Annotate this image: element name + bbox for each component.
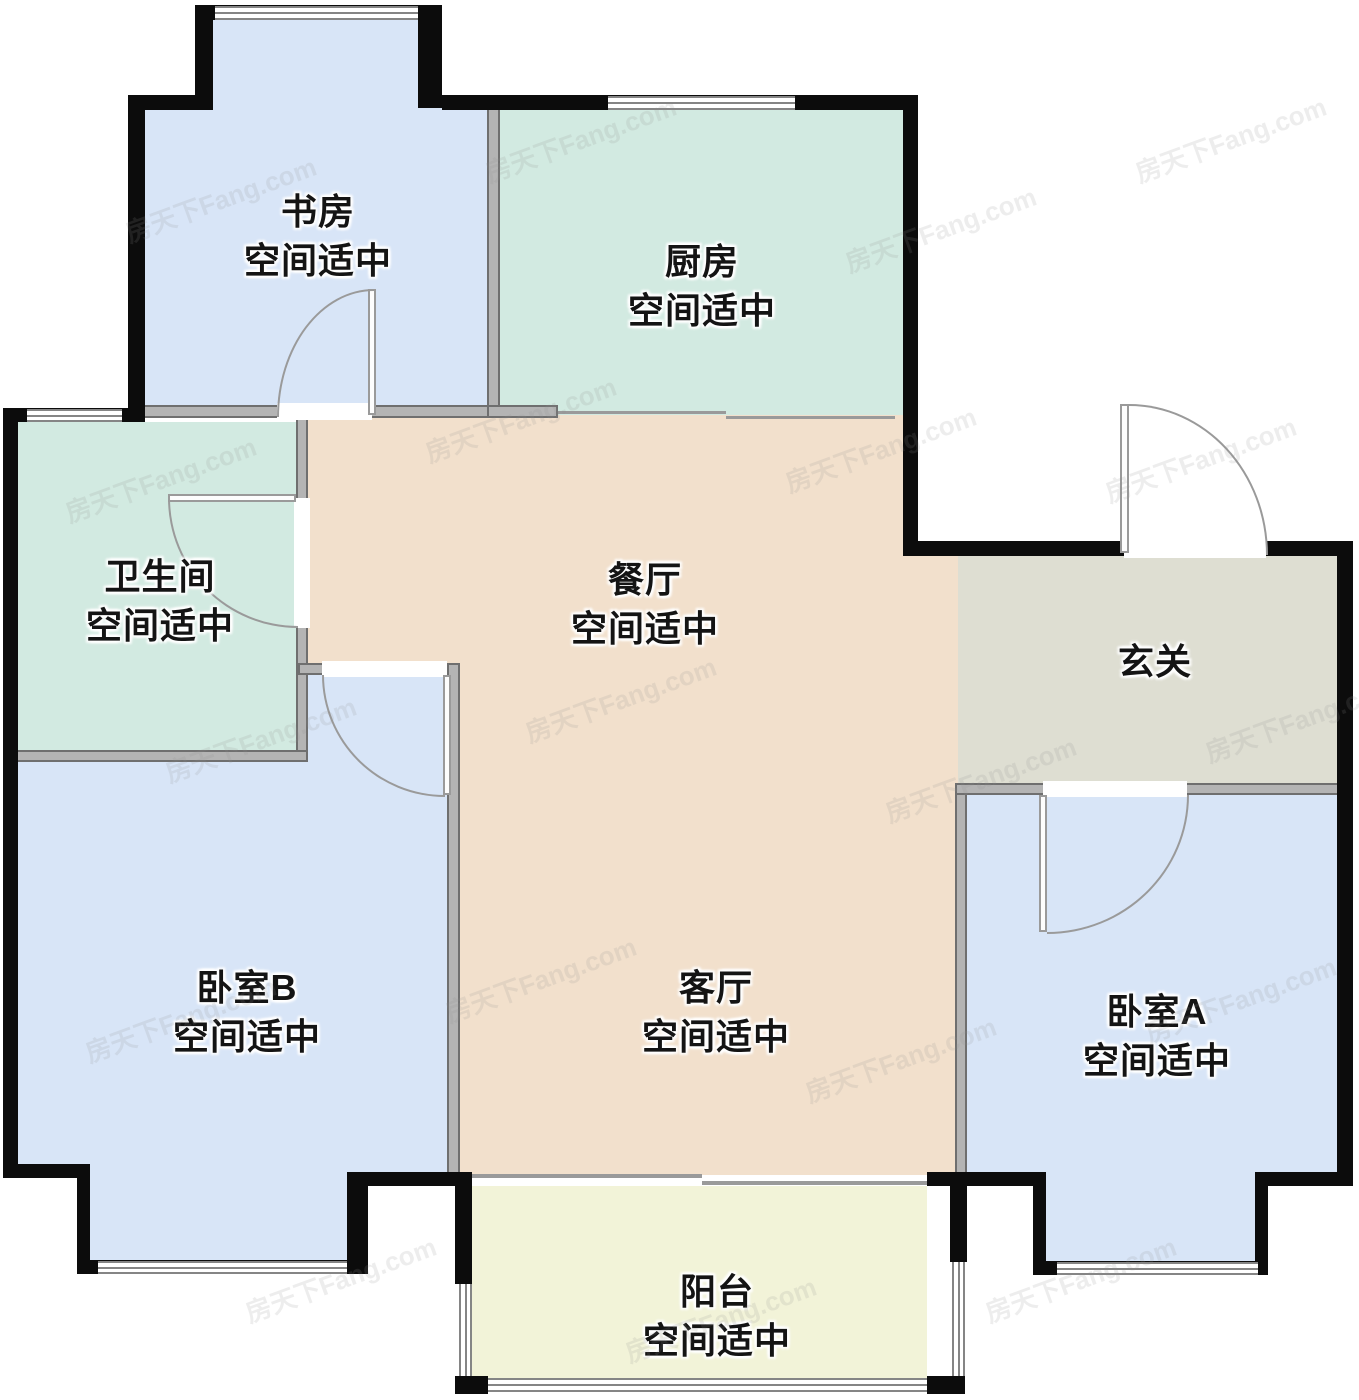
- window-bedroom-a-bay: [1057, 1262, 1258, 1275]
- room-bedroom-b-bay: [90, 1172, 347, 1262]
- wall-kitchen-right: [903, 95, 918, 556]
- wall-ba-bay-right: [1255, 1172, 1268, 1275]
- room-dining-strip: [905, 556, 958, 790]
- label-dining-name: 餐厅: [571, 556, 719, 605]
- wall-ba-bay-left: [1033, 1172, 1046, 1275]
- wall-bb-bottom: [347, 1172, 472, 1186]
- label-bathroom-note: 空间适中: [86, 602, 234, 651]
- wall-ba-bottom-right: [1255, 1172, 1353, 1186]
- wall-kitchen-stub: [487, 405, 558, 418]
- label-living-note: 空间适中: [642, 1013, 790, 1062]
- label-bedroom-a-name: 卧室A: [1083, 988, 1231, 1037]
- label-bedroom-b-note: 空间适中: [173, 1013, 321, 1062]
- label-dining: 餐厅 空间适中: [571, 556, 719, 653]
- door-leaf-bedroom-a: [1039, 795, 1047, 932]
- wall-balcony-bl: [455, 1376, 488, 1394]
- label-study: 书房 空间适中: [244, 188, 392, 285]
- wall-study-left: [128, 95, 145, 422]
- kitchen-pass-line-right: [726, 416, 895, 419]
- label-bathroom-name: 卫生间: [86, 553, 234, 602]
- label-bedroom-a-note: 空间适中: [1083, 1037, 1231, 1086]
- wall-bathroom-bottom: [10, 750, 308, 762]
- label-study-note: 空间适中: [244, 237, 392, 286]
- door-arc-entry: [1129, 404, 1268, 555]
- label-balcony: 阳台 空间适中: [643, 1268, 791, 1365]
- label-hallway: 玄关: [1118, 638, 1192, 687]
- label-balcony-name: 阳台: [643, 1268, 791, 1317]
- floor-plan: 书房 空间适中 厨房 空间适中 卫生间 空间适中 餐厅 空间适中 玄关 卧室B …: [0, 0, 1359, 1400]
- wall-bb-bay-right: [347, 1172, 368, 1274]
- label-bedroom-a: 卧室A 空间适中: [1083, 988, 1231, 1085]
- wall-balcony-br: [927, 1376, 965, 1394]
- wall-right-outer: [1337, 541, 1353, 1185]
- label-hallway-name: 玄关: [1118, 638, 1192, 687]
- window-balcony-bottom: [488, 1378, 927, 1392]
- window-bedroom-b-bay: [98, 1261, 347, 1274]
- window-balcony-left: [459, 1284, 472, 1376]
- label-kitchen-name: 厨房: [628, 238, 776, 287]
- window-study-top: [215, 6, 418, 20]
- label-bedroom-b: 卧室B 空间适中: [173, 964, 321, 1061]
- kitchen-pass-line-left: [558, 411, 726, 414]
- room-bedroom-a-bay: [1046, 1172, 1260, 1262]
- label-living-name: 客厅: [642, 964, 790, 1013]
- label-kitchen-note: 空间适中: [628, 287, 776, 336]
- label-study-name: 书房: [244, 188, 392, 237]
- wall-living-ba-bottom: [927, 1172, 1046, 1186]
- label-dining-note: 空间适中: [571, 605, 719, 654]
- room-study-upper: [213, 18, 418, 113]
- wall-study-top-right: [418, 5, 442, 108]
- window-bathroom-top: [27, 409, 122, 422]
- label-balcony-note: 空间适中: [643, 1317, 791, 1366]
- wall-left-outer: [3, 408, 18, 1178]
- door-leaf-entry: [1120, 404, 1129, 553]
- wall-balcony-left-top: [455, 1172, 472, 1284]
- label-bedroom-b-name: 卧室B: [173, 964, 321, 1013]
- room-living: [460, 665, 955, 1175]
- watermark: 房天下Fang.com: [1130, 87, 1331, 190]
- wall-bb-bay-left: [77, 1164, 90, 1274]
- label-living: 客厅 空间适中: [642, 964, 790, 1061]
- window-kitchen-top: [608, 96, 795, 110]
- balcony-slider-right: [702, 1181, 927, 1185]
- label-bathroom: 卫生间 空间适中: [86, 553, 234, 650]
- wall-study-kitchen: [487, 108, 500, 418]
- window-balcony-right: [952, 1262, 965, 1376]
- balcony-slider-left: [472, 1174, 702, 1178]
- label-kitchen: 厨房 空间适中: [628, 238, 776, 335]
- wall-bedroom-a-left: [955, 783, 967, 1175]
